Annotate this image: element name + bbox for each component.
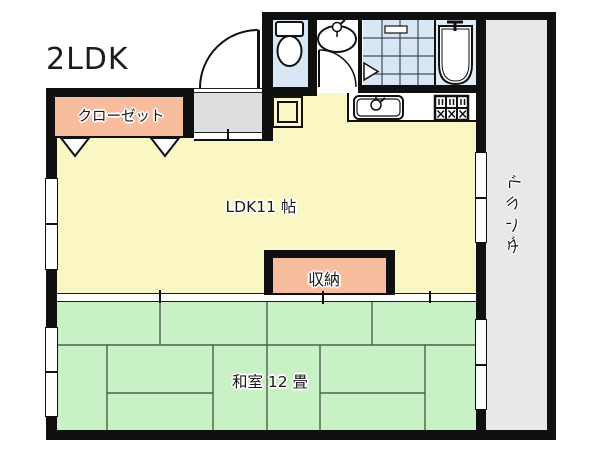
- wall-bottom: [46, 430, 556, 440]
- genkan-area: [194, 93, 262, 133]
- storage-label: 収納: [292, 266, 356, 290]
- veranda-label: ベ ラ ン ダ: [499, 172, 527, 256]
- ldk-label: LDK11 帖: [206, 195, 316, 217]
- wall-entrance-right: [262, 12, 273, 141]
- kitchen-counter: [347, 93, 476, 122]
- wall-bath-bottom: [358, 85, 477, 93]
- sliding-window-icon: [475, 319, 487, 410]
- wall-toilet-bottom: [262, 87, 317, 96]
- wall-toilet-washroom: [308, 19, 317, 96]
- plan-type-label: 2LDK: [46, 42, 129, 77]
- floorplan-canvas: 2LDK: [0, 0, 600, 450]
- wall-tile-tub-divider: [434, 19, 436, 85]
- sliding-window-icon: [45, 327, 58, 417]
- wall-washroom-bath: [358, 19, 362, 93]
- closet-label: クローゼット: [69, 105, 173, 126]
- room-toilet: [271, 20, 308, 87]
- genkan-step: [194, 133, 262, 141]
- entrance-door-arc-icon: [200, 30, 259, 88]
- sliding-window-icon: [45, 178, 58, 270]
- shoe-cabinet-icon: [272, 96, 303, 128]
- wall-right: [547, 12, 556, 440]
- japanese-room-label: 和室 12 畳: [215, 370, 325, 392]
- wall-top: [263, 12, 556, 20]
- sliding-window-icon: [475, 152, 487, 243]
- room-washroom: [317, 20, 358, 88]
- room-japanese: [57, 302, 477, 430]
- room-bathtub: [436, 20, 476, 85]
- room-bathroom: [363, 20, 434, 85]
